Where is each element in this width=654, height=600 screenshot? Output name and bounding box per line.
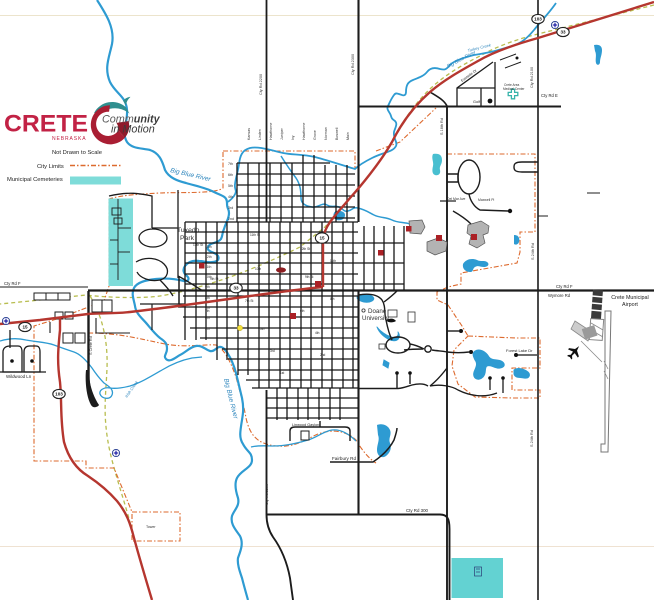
svg-text:5th: 5th bbox=[205, 327, 210, 331]
svg-text:8th: 8th bbox=[330, 297, 335, 301]
svg-text:Tuxedo: Tuxedo bbox=[177, 227, 200, 234]
svg-text:15: 15 bbox=[319, 236, 325, 241]
svg-text:Municipal Cemeteries: Municipal Cemeteries bbox=[7, 177, 63, 183]
svg-text:6th: 6th bbox=[300, 309, 305, 313]
svg-text:Tower: Tower bbox=[146, 525, 156, 529]
svg-text:10th: 10th bbox=[255, 267, 261, 271]
svg-text:Grove: Grove bbox=[313, 130, 317, 140]
svg-text:13th St: 13th St bbox=[193, 243, 203, 247]
svg-text:9th St: 9th St bbox=[210, 277, 218, 281]
svg-text:12th St: 12th St bbox=[300, 247, 310, 251]
svg-text:12th: 12th bbox=[205, 255, 212, 259]
svg-text:9th: 9th bbox=[205, 285, 210, 289]
svg-text:3rd: 3rd bbox=[270, 349, 275, 353]
svg-text:1st: 1st bbox=[280, 371, 284, 375]
svg-text:S 24th Rd: S 24th Rd bbox=[530, 430, 534, 447]
svg-text:Airport: Airport bbox=[622, 302, 638, 308]
svg-text:11th St: 11th St bbox=[250, 233, 260, 237]
svg-text:Not Drawn to Scale: Not Drawn to Scale bbox=[52, 150, 102, 156]
svg-text:NEBRASKA: NEBRASKA bbox=[52, 136, 86, 142]
svg-text:Hawthorne: Hawthorne bbox=[269, 123, 273, 140]
svg-text:33: 33 bbox=[233, 286, 239, 291]
svg-text:Cty Rd 2300: Cty Rd 2300 bbox=[351, 54, 355, 75]
svg-text:S 16th Rd: S 16th Rd bbox=[440, 118, 444, 135]
svg-text:13th: 13th bbox=[205, 245, 212, 249]
svg-text:11th: 11th bbox=[205, 265, 211, 269]
svg-text:Park: Park bbox=[180, 235, 195, 242]
svg-text:Del Mar Ave: Del Mar Ave bbox=[447, 197, 466, 201]
svg-text:Cty Rd 2200: Cty Rd 2200 bbox=[265, 484, 269, 505]
svg-text:Forest Lake Dr: Forest Lake Dr bbox=[506, 348, 533, 353]
svg-text:Cty Rd 300: Cty Rd 300 bbox=[406, 508, 429, 513]
svg-text:Fairbury Rd: Fairbury Rd bbox=[332, 456, 356, 461]
svg-text:103: 103 bbox=[534, 17, 542, 22]
svg-text:Wildwood Ln: Wildwood Ln bbox=[6, 374, 32, 379]
svg-text:Linden: Linden bbox=[258, 129, 262, 140]
svg-text:7th: 7th bbox=[205, 309, 210, 313]
svg-text:Cty Rd E: Cty Rd E bbox=[541, 93, 558, 98]
svg-text:11th: 11th bbox=[330, 259, 336, 263]
svg-text:6th: 6th bbox=[205, 316, 210, 320]
svg-text:Main: Main bbox=[346, 132, 350, 140]
svg-text:CRETE: CRETE bbox=[4, 111, 88, 138]
svg-text:Cty Rd 2100: Cty Rd 2100 bbox=[530, 67, 534, 88]
svg-text:Cty Rd 2200: Cty Rd 2200 bbox=[259, 74, 263, 95]
svg-text:7th St: 7th St bbox=[245, 299, 253, 303]
svg-text:Kansas: Kansas bbox=[247, 128, 251, 140]
svg-text:University: University bbox=[362, 315, 390, 322]
svg-text:2nd: 2nd bbox=[320, 353, 326, 357]
svg-text:Medical Center: Medical Center bbox=[503, 87, 525, 91]
svg-text:9th St: 9th St bbox=[305, 275, 313, 279]
svg-text:4th: 4th bbox=[315, 331, 320, 335]
svg-text:Hawthorne: Hawthorne bbox=[302, 123, 306, 140]
svg-text:Golf: Golf bbox=[473, 100, 481, 104]
svg-text:Maxwell Pl: Maxwell Pl bbox=[478, 198, 494, 202]
svg-text:3rd: 3rd bbox=[228, 206, 233, 210]
svg-text:5th: 5th bbox=[260, 327, 265, 331]
svg-text:103: 103 bbox=[55, 392, 63, 397]
svg-text:2nd: 2nd bbox=[228, 217, 234, 221]
svg-text:15: 15 bbox=[22, 325, 28, 330]
svg-text:Cty Rd F: Cty Rd F bbox=[556, 284, 573, 289]
svg-text:Ivy: Ivy bbox=[291, 135, 295, 140]
svg-text:7th: 7th bbox=[228, 162, 233, 166]
svg-text:Norman: Norman bbox=[324, 127, 328, 140]
svg-text:Wymore Rd: Wymore Rd bbox=[548, 293, 571, 298]
svg-text:Boswell: Boswell bbox=[335, 127, 339, 140]
svg-text:6th: 6th bbox=[228, 173, 233, 177]
svg-text:Linwood Gaylord: Linwood Gaylord bbox=[292, 423, 321, 427]
svg-text:Crete Municipal: Crete Municipal bbox=[611, 295, 648, 301]
svg-text:City Limits: City Limits bbox=[37, 164, 64, 170]
svg-text:8th: 8th bbox=[205, 296, 210, 300]
svg-text:Cty Rd F: Cty Rd F bbox=[4, 281, 21, 286]
svg-text:Juniper: Juniper bbox=[280, 127, 284, 140]
svg-text:S Crete Rd: S Crete Rd bbox=[89, 336, 93, 355]
svg-text:in Motion: in Motion bbox=[111, 124, 155, 136]
svg-text:Doane: Doane bbox=[368, 308, 387, 315]
svg-text:4th: 4th bbox=[228, 195, 233, 199]
svg-text:5th: 5th bbox=[228, 184, 233, 188]
svg-text:33: 33 bbox=[560, 30, 566, 35]
svg-text:S 24th Rd: S 24th Rd bbox=[531, 243, 535, 260]
